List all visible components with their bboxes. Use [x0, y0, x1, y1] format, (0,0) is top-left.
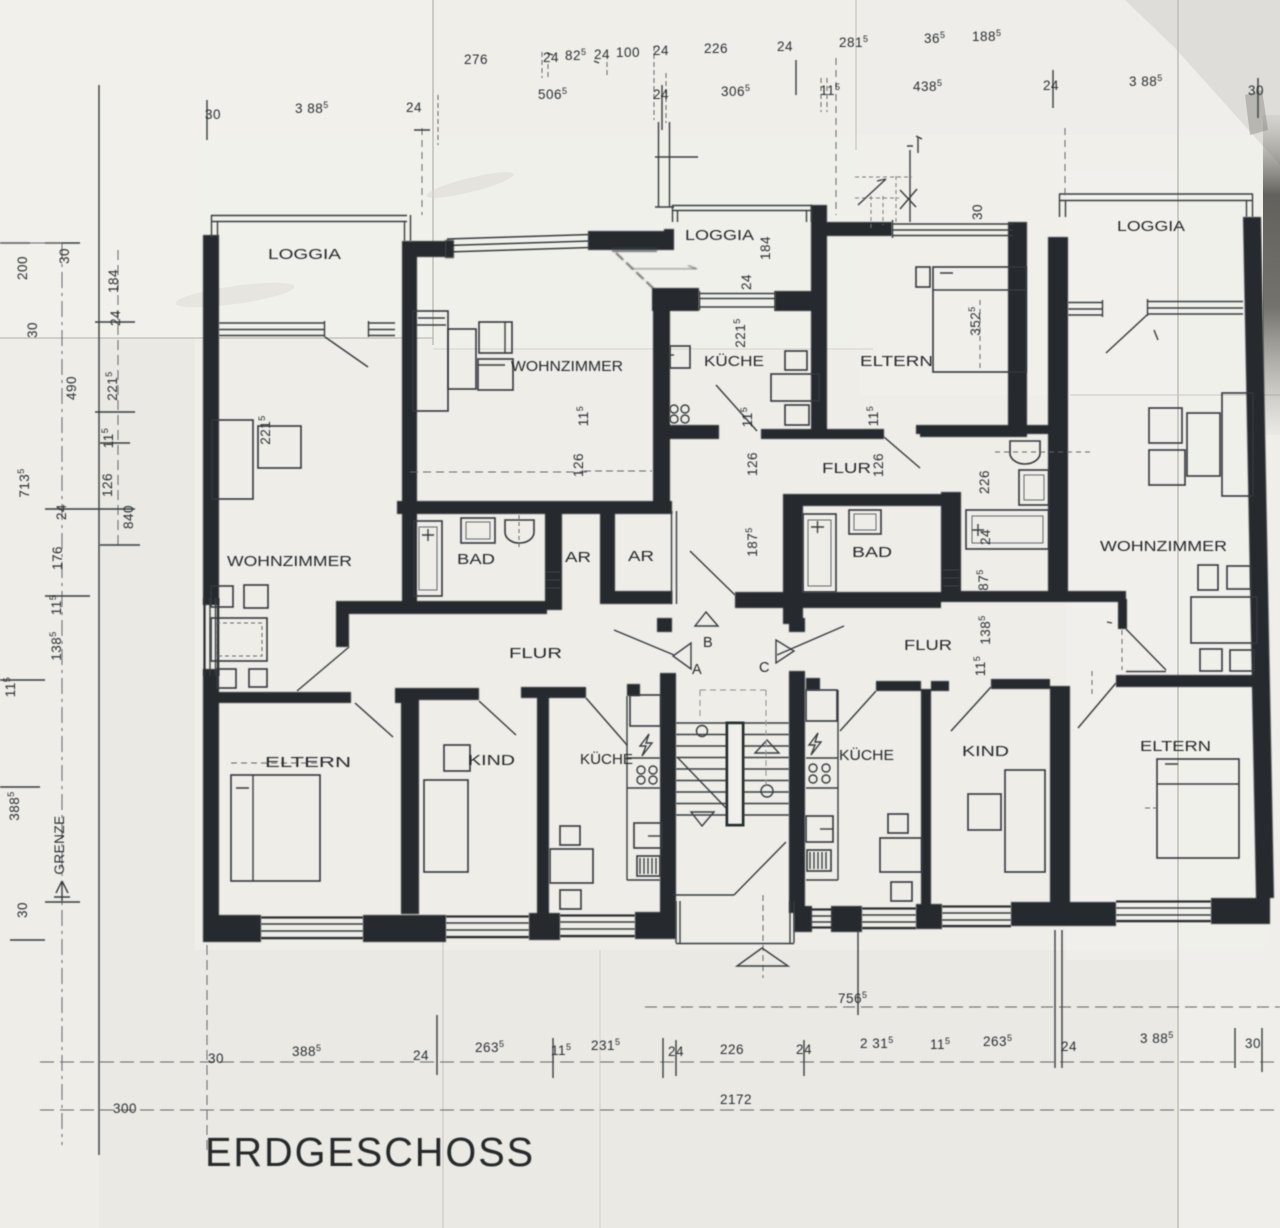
- svg-text:WOHNZIMMER: WOHNZIMMER: [1100, 539, 1227, 555]
- svg-text:276: 276: [464, 52, 488, 67]
- svg-text:30: 30: [970, 204, 985, 220]
- svg-text:100: 100: [616, 45, 640, 60]
- svg-text:ELTERN: ELTERN: [1140, 739, 1211, 755]
- svg-text:BAD: BAD: [457, 552, 495, 568]
- svg-text:30: 30: [15, 902, 30, 918]
- svg-text:AR: AR: [565, 550, 591, 566]
- svg-text:KIND: KIND: [468, 753, 515, 769]
- svg-text:30: 30: [208, 1051, 224, 1066]
- svg-text:FLUR: FLUR: [904, 638, 952, 654]
- svg-text:24: 24: [413, 1048, 429, 1063]
- svg-text:FLUR: FLUR: [509, 646, 562, 662]
- svg-text:24: 24: [1061, 1039, 1077, 1054]
- svg-text:24: 24: [739, 274, 754, 290]
- svg-text:24: 24: [653, 43, 669, 58]
- svg-text:ELTERN: ELTERN: [265, 755, 351, 771]
- svg-text:126: 126: [100, 473, 115, 497]
- svg-text:24: 24: [594, 47, 610, 62]
- svg-text:GRENZE: GRENZE: [52, 815, 67, 874]
- svg-text:24: 24: [668, 1044, 684, 1059]
- svg-text:24: 24: [543, 50, 559, 65]
- svg-text:126: 126: [745, 452, 760, 476]
- svg-text:24: 24: [653, 87, 669, 102]
- svg-text:24: 24: [796, 1042, 812, 1057]
- svg-text:LOGGIA: LOGGIA: [1117, 219, 1185, 235]
- svg-text:24: 24: [108, 310, 123, 326]
- svg-text:A: A: [692, 662, 702, 678]
- svg-text:226: 226: [977, 470, 992, 494]
- svg-text:LOGGIA: LOGGIA: [268, 247, 341, 263]
- svg-text:KIND: KIND: [962, 744, 1009, 760]
- svg-text:200: 200: [15, 256, 30, 280]
- svg-text:30: 30: [57, 248, 72, 264]
- svg-text:184: 184: [758, 236, 773, 260]
- svg-text:840: 840: [121, 505, 136, 529]
- svg-text:490: 490: [64, 376, 79, 400]
- svg-text:24: 24: [54, 504, 69, 520]
- svg-text:ERDGESCHOSS: ERDGESCHOSS: [205, 1129, 535, 1175]
- svg-text:KÜCHE: KÜCHE: [704, 352, 764, 370]
- svg-text:WOHNZIMMER: WOHNZIMMER: [227, 554, 352, 570]
- svg-text:B: B: [703, 635, 713, 651]
- svg-text:300: 300: [113, 1101, 137, 1116]
- svg-text:30: 30: [205, 107, 221, 122]
- svg-text:30: 30: [25, 322, 40, 338]
- svg-text:24: 24: [1043, 78, 1059, 93]
- svg-text:24: 24: [777, 39, 793, 54]
- svg-text:126: 126: [871, 453, 886, 477]
- svg-text:30: 30: [1248, 83, 1264, 98]
- svg-text:184: 184: [106, 269, 121, 293]
- svg-text:LOGGIA: LOGGIA: [685, 228, 754, 244]
- svg-text:24: 24: [406, 100, 422, 115]
- svg-text:226: 226: [704, 41, 728, 56]
- svg-text:126: 126: [571, 453, 586, 477]
- svg-text:BAD: BAD: [852, 545, 892, 561]
- svg-text:2172: 2172: [720, 1092, 752, 1107]
- svg-text:FLUR: FLUR: [822, 461, 871, 477]
- svg-text:WOHNZIMMER: WOHNZIMMER: [511, 359, 623, 375]
- svg-text:226: 226: [720, 1042, 744, 1057]
- svg-text:ELTERN: ELTERN: [860, 354, 933, 370]
- svg-text:C: C: [759, 660, 769, 676]
- svg-text:176: 176: [50, 546, 65, 570]
- svg-text:AR: AR: [628, 549, 654, 565]
- svg-text:KÜCHE: KÜCHE: [839, 746, 894, 764]
- svg-text:24: 24: [978, 529, 993, 545]
- svg-text:30: 30: [1245, 1036, 1261, 1051]
- svg-text:KÜCHE: KÜCHE: [580, 750, 633, 768]
